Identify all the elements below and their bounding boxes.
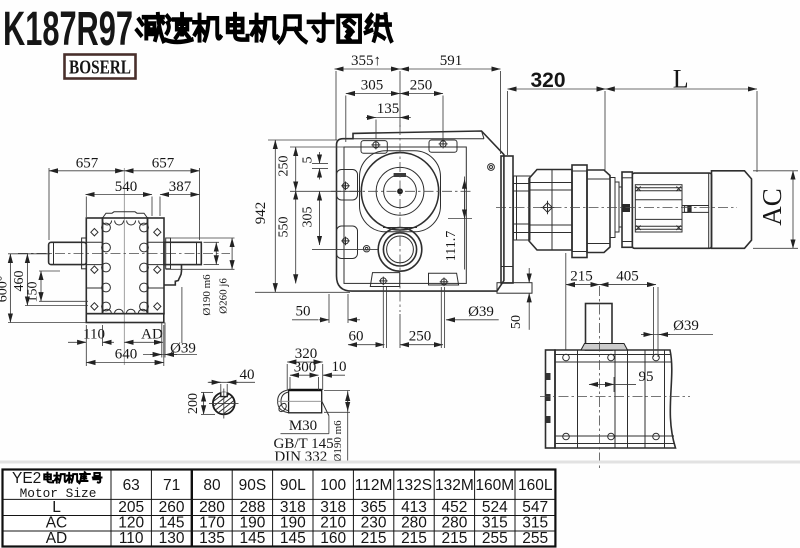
svg-text:280: 280 <box>441 514 467 531</box>
svg-text:150: 150 <box>26 282 41 303</box>
svg-text:260: 260 <box>159 499 185 516</box>
svg-text:640: 640 <box>115 347 138 363</box>
svg-text:300: 300 <box>294 360 317 376</box>
svg-text:387: 387 <box>169 179 192 195</box>
svg-text:600°: 600° <box>0 276 11 303</box>
svg-text:10: 10 <box>332 359 347 375</box>
svg-text:305: 305 <box>301 207 316 228</box>
svg-text:90L: 90L <box>280 477 306 494</box>
svg-text:215: 215 <box>401 530 427 547</box>
svg-text:215: 215 <box>570 269 593 285</box>
svg-text:71: 71 <box>163 477 180 494</box>
svg-text:100: 100 <box>320 477 346 494</box>
svg-text:318: 318 <box>280 499 306 516</box>
svg-text:255: 255 <box>522 530 548 547</box>
svg-text:L: L <box>673 65 689 94</box>
svg-text:AD: AD <box>141 326 163 342</box>
svg-text:280: 280 <box>199 499 225 516</box>
svg-text:190: 190 <box>239 514 265 531</box>
svg-text:90S: 90S <box>239 477 267 494</box>
svg-text:170: 170 <box>199 514 225 531</box>
svg-text:BOSERL: BOSERL <box>69 58 131 79</box>
svg-text:365: 365 <box>361 499 387 516</box>
svg-text:547: 547 <box>522 499 548 516</box>
svg-text:Ø260 j6: Ø260 j6 <box>218 278 230 314</box>
svg-text:205: 205 <box>118 499 144 516</box>
svg-text:305: 305 <box>361 78 384 94</box>
svg-text:135: 135 <box>377 101 400 117</box>
svg-text:145: 145 <box>280 530 306 547</box>
svg-text:L: L <box>52 499 61 516</box>
svg-text:540: 540 <box>115 179 138 195</box>
svg-text:250: 250 <box>409 329 432 345</box>
svg-text:Ø39: Ø39 <box>673 318 699 334</box>
svg-text:160M: 160M <box>475 477 514 494</box>
svg-text:Ø190 m6: Ø190 m6 <box>332 420 344 462</box>
svg-text:200: 200 <box>186 393 201 414</box>
svg-text:160: 160 <box>320 530 346 547</box>
svg-text:315: 315 <box>522 514 548 531</box>
svg-text:132M: 132M <box>435 477 474 494</box>
svg-text:K187R97: K187R97 <box>3 3 133 56</box>
svg-text:132S: 132S <box>396 477 432 494</box>
svg-text:AC: AC <box>757 188 787 226</box>
svg-text:80: 80 <box>203 477 221 494</box>
svg-text:210: 210 <box>320 514 346 531</box>
svg-text:942: 942 <box>253 202 269 225</box>
svg-text:250: 250 <box>277 156 292 177</box>
svg-text:135: 135 <box>199 530 225 547</box>
svg-text:250: 250 <box>410 78 433 94</box>
svg-text:320: 320 <box>530 69 565 92</box>
svg-text:160L: 160L <box>518 477 553 494</box>
svg-text:111.7: 111.7 <box>444 231 459 261</box>
svg-text:Ø39: Ø39 <box>468 304 494 320</box>
svg-text:657: 657 <box>76 155 99 171</box>
svg-text:145: 145 <box>159 514 185 531</box>
svg-text:AC: AC <box>46 514 68 531</box>
svg-text:591: 591 <box>440 53 463 69</box>
svg-text:550: 550 <box>277 217 292 238</box>
svg-text:112M: 112M <box>355 477 393 494</box>
svg-text:AD: AD <box>46 530 68 547</box>
svg-text:63: 63 <box>123 477 140 494</box>
svg-text:215: 215 <box>361 530 387 547</box>
svg-text:145: 145 <box>239 530 265 547</box>
svg-text:355↑: 355↑ <box>351 53 381 69</box>
svg-text:315: 315 <box>482 514 508 531</box>
svg-text:130: 130 <box>159 530 185 547</box>
svg-text:40: 40 <box>240 367 255 383</box>
svg-text:280: 280 <box>401 514 427 531</box>
svg-text:255: 255 <box>482 530 508 547</box>
svg-text:5: 5 <box>301 157 316 164</box>
svg-text:524: 524 <box>482 499 508 516</box>
svg-text:50: 50 <box>509 315 524 329</box>
svg-text:657: 657 <box>152 155 175 171</box>
svg-text:405: 405 <box>616 269 639 285</box>
svg-text:452: 452 <box>441 499 467 516</box>
svg-text:413: 413 <box>401 499 427 516</box>
svg-text:288: 288 <box>239 499 265 516</box>
svg-text:YE2: YE2 <box>12 470 41 487</box>
svg-text:230: 230 <box>361 514 387 531</box>
svg-text:50: 50 <box>296 304 311 320</box>
svg-text:110: 110 <box>119 530 144 547</box>
svg-text:M30: M30 <box>289 418 317 434</box>
svg-text:318: 318 <box>320 499 346 516</box>
svg-text:60: 60 <box>349 329 364 345</box>
svg-text:Ø190 m6: Ø190 m6 <box>201 274 213 316</box>
svg-text:215: 215 <box>441 530 467 547</box>
svg-text:190: 190 <box>280 514 306 531</box>
svg-text:120: 120 <box>118 514 144 531</box>
svg-text:95: 95 <box>639 369 654 385</box>
